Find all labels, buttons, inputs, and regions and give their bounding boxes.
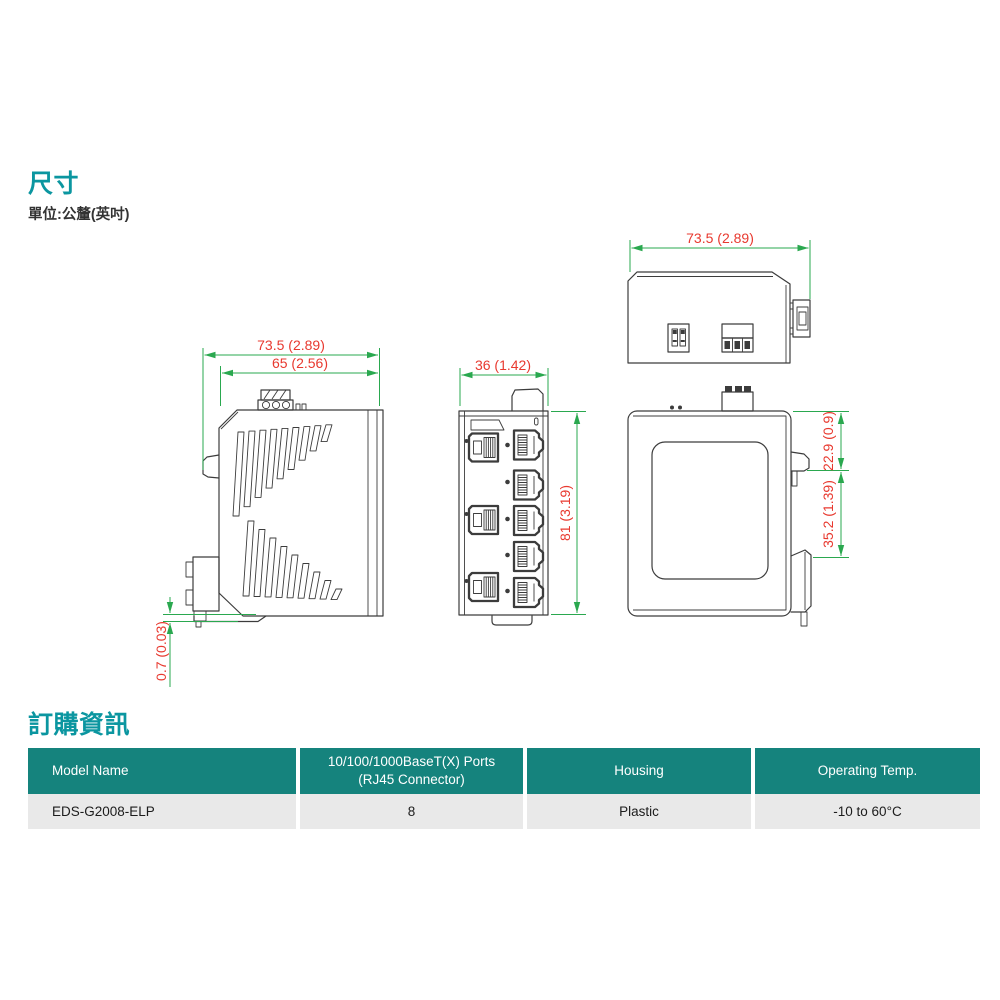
dip-switch-block bbox=[668, 324, 689, 352]
ordering-table: Model Name 10/100/1000BaseT(X) Ports (RJ… bbox=[28, 748, 980, 829]
ordering-section-title: 訂購資訊 bbox=[28, 705, 130, 741]
top-view-width-dim: 73.5 (2.89) bbox=[686, 230, 754, 246]
col-header-model-name: Model Name bbox=[28, 748, 298, 794]
power-terminal-block-side bbox=[258, 390, 306, 410]
power-terminal-block-rear bbox=[722, 386, 753, 411]
dimension-drawings: 73.5 (2.89) bbox=[0, 0, 1000, 1000]
cell-housing: Plastic bbox=[525, 794, 753, 829]
cell-model-name: EDS-G2008-ELP bbox=[28, 794, 298, 829]
rj45-port bbox=[514, 542, 543, 571]
top-view-drawing: 73.5 (2.89) bbox=[628, 230, 810, 363]
rear-view-drawing: 22.9 (0.9) 35.2 (1.39) bbox=[628, 386, 849, 626]
rj45-port bbox=[514, 578, 543, 607]
rj45-port bbox=[469, 434, 498, 462]
side-view-plate-thickness-dim: 0.7 (0.03) bbox=[153, 621, 169, 681]
rj45-port bbox=[469, 573, 498, 601]
cell-ports: 8 bbox=[298, 794, 525, 829]
side-view-drawing: 73.5 (2.89) 65 (2.56) 0.7 (0.03) bbox=[153, 337, 383, 687]
table-row: EDS-G2008-ELP 8 Plastic -10 to 60°C bbox=[28, 794, 980, 829]
side-view-body-width-dim: 65 (2.56) bbox=[272, 355, 328, 371]
rj45-port bbox=[514, 506, 543, 535]
rear-view-upper-dim: 22.9 (0.9) bbox=[820, 411, 836, 471]
label-slot bbox=[471, 420, 504, 430]
cell-operating-temp: -10 to 60°C bbox=[753, 794, 980, 829]
rj45-port bbox=[469, 506, 498, 534]
side-view-overall-width-dim: 73.5 (2.89) bbox=[257, 337, 325, 353]
col-header-housing: Housing bbox=[525, 748, 753, 794]
front-view-height-dim: 81 (3.19) bbox=[557, 485, 573, 541]
power-terminal-block-top bbox=[722, 324, 753, 352]
rj45-port bbox=[514, 471, 543, 500]
front-view-width-dim: 36 (1.42) bbox=[475, 357, 531, 373]
din-rail-clip-side bbox=[186, 455, 219, 621]
col-header-ports: 10/100/1000BaseT(X) Ports (RJ45 Connecto… bbox=[298, 748, 525, 794]
led-indicator bbox=[535, 418, 539, 425]
front-view-drawing: 36 (1.42) 81 (3.19) bbox=[459, 357, 586, 625]
rear-panel-recess bbox=[652, 442, 768, 579]
bottom-tab bbox=[492, 616, 532, 625]
din-rail-clip-rear bbox=[791, 452, 811, 626]
din-latch-tab bbox=[512, 389, 543, 411]
table-header-row: Model Name 10/100/1000BaseT(X) Ports (RJ… bbox=[28, 748, 980, 794]
col-header-operating-temp: Operating Temp. bbox=[753, 748, 980, 794]
rj45-port bbox=[514, 431, 543, 460]
datasheet-page: 尺寸 單位:公釐(英吋) bbox=[0, 0, 1000, 1000]
rear-view-lower-dim: 35.2 (1.39) bbox=[820, 480, 836, 548]
din-rail-clip-top bbox=[790, 300, 810, 337]
vent-slots bbox=[233, 425, 342, 600]
